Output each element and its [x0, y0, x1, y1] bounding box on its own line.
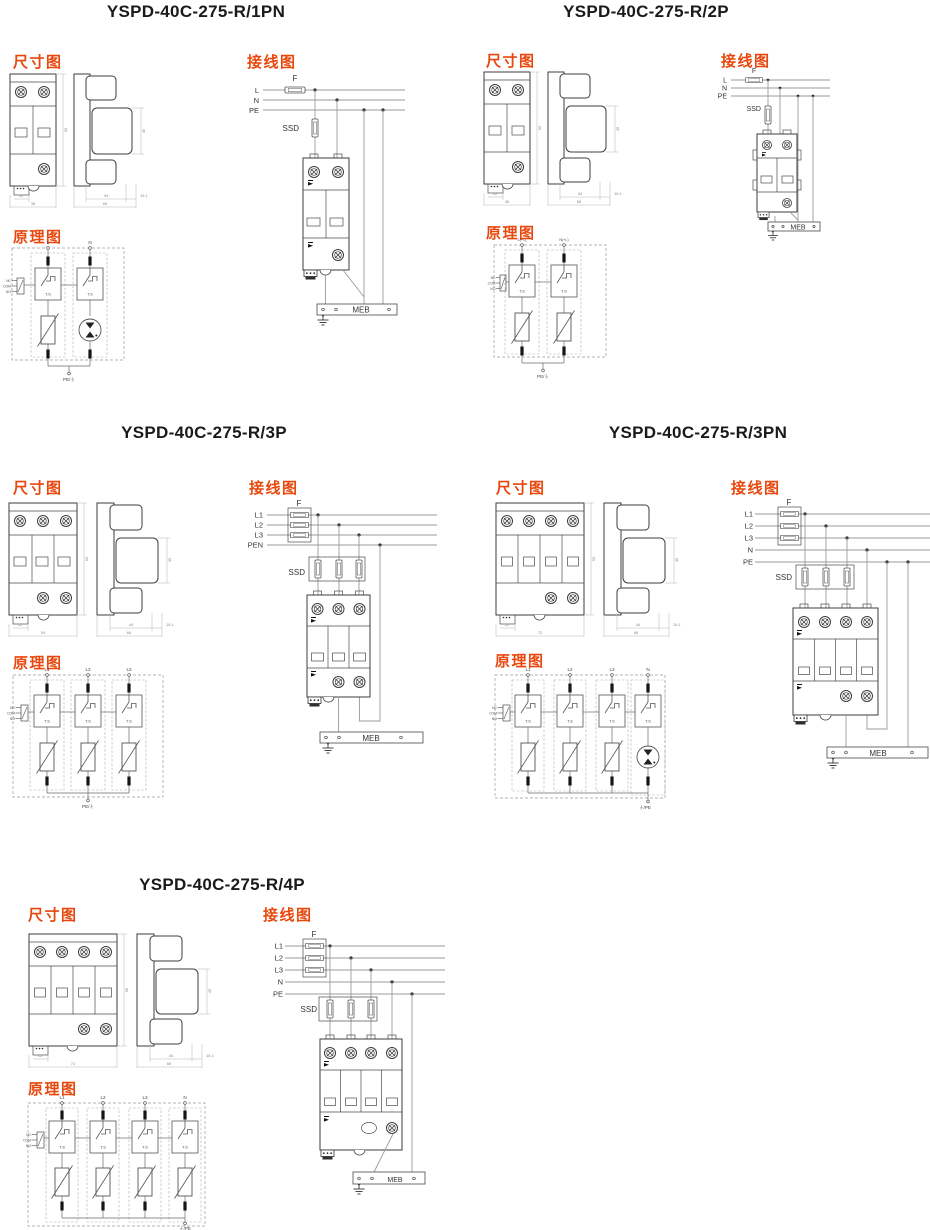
- svg-text:L3: L3: [142, 1095, 148, 1100]
- pe-terminal-label: PE/⏚: [537, 373, 549, 379]
- svg-text:MEB: MEB: [362, 734, 379, 743]
- svg-text:T.S: T.S: [519, 290, 525, 294]
- svg-text:66: 66: [103, 201, 108, 206]
- spd-datasheet-page: YSPD-40C-275-R/1PN 尺寸图 接线图 原理图 90 12 36 …: [0, 0, 930, 1230]
- svg-text:L1: L1: [59, 1095, 65, 1100]
- svg-text:COM: COM: [3, 285, 11, 289]
- svg-text:T.S: T.S: [59, 1146, 65, 1150]
- fuse-label: F: [293, 74, 298, 83]
- front-view: 90 12 54: [9, 503, 89, 637]
- side-view: 44 16.1 66 45: [604, 503, 682, 637]
- svg-text:T.S: T.S: [44, 720, 50, 724]
- svg-text:16.1: 16.1: [206, 1053, 215, 1058]
- svg-text:90: 90: [84, 556, 89, 561]
- svg-text:SSD: SSD: [747, 106, 761, 113]
- section-title-3pn: YSPD-40C-275-R/3PN: [609, 423, 787, 443]
- svg-text:MEB: MEB: [790, 224, 806, 231]
- svg-text:T.S: T.S: [525, 720, 531, 724]
- pe-terminal-label: PE/⏚: [63, 376, 75, 382]
- fuse-symbol: [746, 77, 763, 82]
- terminal-n: N(+/-): [559, 238, 568, 242]
- schematic-diagram-3pn: L1 L2 L3 N T.S T.S T.S T.S ⏚/PE NC COM N…: [490, 662, 675, 817]
- svg-text:NO: NO: [26, 1144, 31, 1148]
- svg-text:T.S: T.S: [609, 720, 615, 724]
- meb-bar: MEB: [768, 222, 820, 231]
- pe-terminal-label: ⏚/PE: [179, 1225, 191, 1230]
- svg-text:90: 90: [537, 125, 542, 130]
- svg-text:T.S: T.S: [561, 290, 567, 294]
- svg-text:66: 66: [634, 630, 639, 635]
- pe-terminal-label: PE/⏚: [82, 803, 94, 809]
- section-title-3p: YSPD-40C-275-R/3P: [121, 423, 287, 443]
- spd-device-4pole: [793, 604, 878, 725]
- svg-text:PE: PE: [743, 558, 753, 567]
- svg-text:L3: L3: [126, 667, 132, 672]
- svg-text:L1: L1: [745, 510, 753, 519]
- svg-text:L: L: [723, 78, 727, 85]
- svg-text:L1: L1: [525, 667, 531, 672]
- side-view: 44 16.1 66 45: [97, 503, 175, 637]
- svg-text:NC: NC: [6, 279, 11, 283]
- section-title-4p: YSPD-40C-275-R/4P: [139, 875, 305, 895]
- svg-text:44: 44: [636, 622, 641, 627]
- svg-text:54: 54: [41, 630, 46, 635]
- mov-symbol: [38, 314, 59, 347]
- fuse-block: [303, 939, 326, 977]
- ssd-label: SSD: [283, 124, 300, 133]
- svg-text:T.S: T.S: [182, 1146, 188, 1150]
- svg-text:T.S: T.S: [85, 720, 91, 724]
- svg-text:L3: L3: [745, 534, 753, 543]
- svg-text:L3: L3: [275, 966, 283, 975]
- dimension-diagram-3p: 90 12 54 44 16.1 66 45: [5, 495, 190, 645]
- svg-text:90: 90: [591, 556, 596, 561]
- ground-symbol: [318, 315, 329, 325]
- ssd-block: [319, 997, 377, 1021]
- svg-text:NO: NO: [6, 290, 11, 294]
- svg-text:NO: NO: [10, 717, 15, 721]
- wiring-diagram-4p: L1 L2 L3 N PE F SSD MEB: [262, 930, 447, 1202]
- terminal-n: N: [88, 240, 91, 245]
- dimension-diagram-2p: 90 12 36 44 16.1 66 45: [480, 64, 630, 214]
- svg-text:SSD: SSD: [301, 1005, 318, 1014]
- schematic-diagram-3p: L1 L2 L3 T.S T.S T.S PE/⏚ NC COM NO: [8, 662, 173, 812]
- svg-text:45: 45: [141, 128, 146, 133]
- schematic-diagram-4p: L1 L2 L3 N T.S T.S T.S T.S ⏚/PE NC COM N…: [25, 1092, 210, 1230]
- svg-text:T.S: T.S: [567, 720, 573, 724]
- svg-text:COM: COM: [488, 282, 496, 286]
- dimension-diagram-1pn: 90 12 36 44 16.1 66 45: [6, 66, 156, 216]
- svg-text:SSD: SSD: [289, 568, 306, 577]
- svg-text:45: 45: [674, 557, 679, 562]
- svg-text:COM: COM: [489, 712, 497, 716]
- svg-text:12: 12: [505, 622, 510, 627]
- meb-bar: MEB: [353, 1172, 425, 1184]
- svg-text:44: 44: [169, 1053, 174, 1058]
- wiring-diagram-2p: L N PE F SSD MEB: [713, 64, 848, 254]
- svg-text:44: 44: [578, 191, 583, 196]
- gdt-symbol: [637, 746, 659, 768]
- svg-text:N: N: [646, 667, 649, 672]
- svg-text:L3: L3: [255, 531, 263, 540]
- svg-text:90: 90: [124, 987, 129, 992]
- side-view: 44 16.1 66 45: [548, 72, 623, 206]
- wiring-diagram-1pn: L N PE F SSD MEB: [243, 66, 408, 328]
- svg-text:T.S: T.S: [87, 293, 93, 297]
- svg-text:N: N: [748, 546, 753, 555]
- fuse-symbol: [285, 87, 305, 93]
- svg-text:N: N: [278, 978, 283, 987]
- svg-text:L2: L2: [255, 521, 263, 530]
- side-view: 44 16.1 66 45: [137, 934, 215, 1068]
- svg-text:MEB: MEB: [869, 749, 886, 758]
- gdt-symbol: [79, 319, 101, 341]
- front-view: 90 12 72: [29, 934, 129, 1068]
- svg-text:NC: NC: [26, 1133, 31, 1137]
- svg-text:NC: NC: [491, 276, 496, 280]
- svg-text:T.S: T.S: [45, 293, 51, 297]
- svg-text:NC: NC: [492, 706, 497, 710]
- svg-text:NO: NO: [492, 717, 497, 721]
- svg-text:NC: NC: [10, 706, 15, 710]
- svg-text:T.S: T.S: [645, 720, 651, 724]
- section-title-2p: YSPD-40C-275-R/2P: [563, 2, 729, 22]
- svg-text:L2: L2: [567, 667, 573, 672]
- fuse-block: [778, 507, 801, 545]
- svg-text:N: N: [722, 86, 727, 93]
- svg-text:90: 90: [63, 127, 68, 132]
- meb-bar: MEB: [320, 732, 423, 743]
- svg-text:PE: PE: [718, 94, 728, 101]
- svg-text:72: 72: [71, 1061, 76, 1066]
- svg-text:66: 66: [577, 199, 582, 204]
- svg-text:COM: COM: [7, 712, 15, 716]
- svg-text:SSD: SSD: [776, 573, 793, 582]
- svg-text:66: 66: [167, 1061, 172, 1066]
- svg-text:F: F: [312, 930, 317, 939]
- ssd-block: [309, 557, 365, 581]
- svg-text:MEB: MEB: [387, 1177, 403, 1184]
- terminal-l: L(+/-): [518, 238, 527, 242]
- wiring-diagram-3p: L1 L2 L3 PEN F SSD MEB: [245, 495, 440, 765]
- schematic-diagram-2p: L(+/-) N(+/-) T.S T.S PE/⏚ NC COM NO: [490, 233, 615, 383]
- ground-symbol: [323, 743, 334, 753]
- svg-text:PE: PE: [273, 990, 283, 999]
- svg-text:T.S: T.S: [126, 720, 132, 724]
- mov-symbol: [512, 311, 533, 344]
- svg-text:L2: L2: [100, 1095, 106, 1100]
- svg-text:L2: L2: [745, 522, 753, 531]
- svg-text:66: 66: [127, 630, 132, 635]
- ground-symbol: [768, 231, 778, 240]
- svg-text:72: 72: [538, 630, 543, 635]
- svg-text:N: N: [183, 1095, 186, 1100]
- dimension-label-4p: 尺寸图: [28, 904, 78, 925]
- svg-text:45: 45: [167, 557, 172, 562]
- svg-text:F: F: [787, 498, 792, 507]
- front-view: 90 12 72: [496, 503, 596, 637]
- svg-text:16.1: 16.1: [614, 191, 623, 196]
- front-view: 90 12 36: [10, 74, 68, 208]
- spd-device-3pole: [307, 591, 370, 707]
- svg-text:45: 45: [615, 126, 620, 131]
- svg-text:F: F: [297, 499, 302, 508]
- svg-text:T.S: T.S: [100, 1146, 106, 1150]
- svg-text:T.S: T.S: [142, 1146, 148, 1150]
- ground-symbol: [828, 758, 839, 768]
- svg-text:12: 12: [19, 193, 24, 198]
- side-view: 44 16.1 66 45: [74, 74, 149, 208]
- line-label-n: N: [254, 96, 259, 105]
- svg-text:L1: L1: [255, 511, 263, 520]
- svg-text:12: 12: [38, 1053, 43, 1058]
- ssd-fuse-symbol: [312, 119, 318, 137]
- dimension-diagram-4p: 90 12 72 44 16.1 66 45: [25, 926, 225, 1076]
- svg-text:PEN: PEN: [248, 541, 263, 550]
- svg-text:44: 44: [104, 193, 109, 198]
- svg-text:L1: L1: [44, 667, 50, 672]
- svg-text:L2: L2: [275, 954, 283, 963]
- meb-bar: MEB: [317, 304, 397, 315]
- spd-device-2pole: [303, 154, 349, 280]
- svg-text:44: 44: [129, 622, 134, 627]
- svg-text:12: 12: [18, 622, 23, 627]
- svg-text:COM: COM: [23, 1139, 31, 1143]
- ssd-block: [796, 565, 854, 589]
- svg-text:36: 36: [505, 199, 510, 204]
- line-label-l: L: [255, 86, 259, 95]
- mov-symbol: [554, 311, 575, 344]
- wiring-label-4p: 接线图: [263, 904, 313, 925]
- svg-text:16.1: 16.1: [166, 622, 175, 627]
- svg-text:L2: L2: [85, 667, 91, 672]
- svg-text:L3: L3: [609, 667, 615, 672]
- spd-device-2pole: [753, 130, 801, 220]
- svg-text:16.1: 16.1: [140, 193, 149, 198]
- ground-symbol: [354, 1184, 365, 1194]
- ssd-fuse-symbol: [765, 106, 771, 124]
- svg-text:16.1: 16.1: [673, 622, 682, 627]
- svg-text:NO: NO: [490, 287, 495, 291]
- svg-text:F: F: [752, 68, 756, 75]
- fuse-block: [288, 508, 311, 542]
- meb-bar: MEB: [827, 747, 928, 758]
- line-label-pe: PE: [249, 106, 259, 115]
- terminal-l: L: [47, 240, 50, 245]
- schematic-diagram-1pn: L N T.S T.S PE/⏚ NC COM NO: [4, 236, 134, 386]
- svg-text:12: 12: [493, 191, 498, 196]
- dimension-diagram-3pn: 90 12 72 44 16.1 66 45: [492, 495, 692, 645]
- pe-terminal-label: ⏚/PE: [639, 804, 651, 810]
- meb-label: MEB: [352, 306, 369, 315]
- section-title-1pn: YSPD-40C-275-R/1PN: [107, 2, 285, 22]
- front-view: 90 12 36: [484, 72, 542, 206]
- svg-text:36: 36: [31, 201, 36, 206]
- wiring-diagram-3pn: L1 L2 L3 N PE F SSD MEB: [728, 495, 930, 780]
- svg-text:L1: L1: [275, 942, 283, 951]
- svg-text:45: 45: [207, 988, 212, 993]
